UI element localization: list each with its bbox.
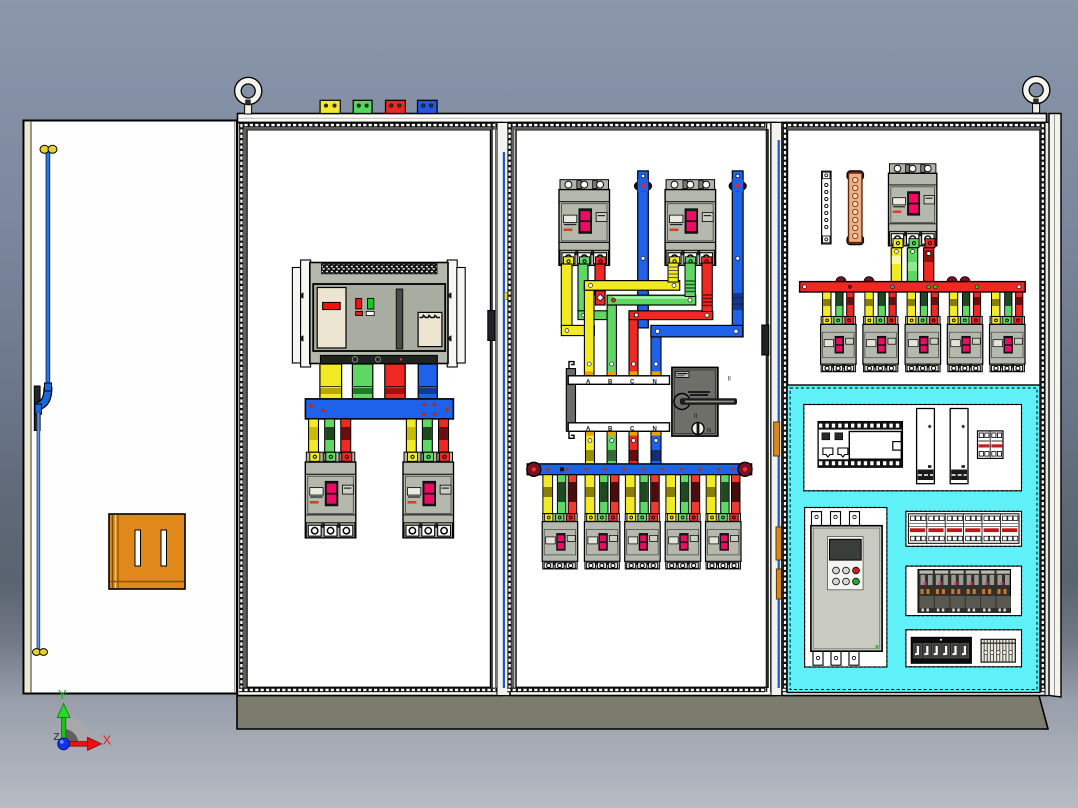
svg-text:Y: Y: [58, 687, 67, 702]
svg-text:C: C: [630, 379, 635, 385]
svg-text:B: B: [608, 379, 613, 385]
svg-text:N: N: [653, 379, 657, 385]
svg-text:X: X: [103, 733, 112, 748]
svg-text:ll: ll: [728, 377, 731, 383]
svg-text:A: A: [586, 379, 591, 385]
svg-text:N: N: [707, 429, 711, 435]
